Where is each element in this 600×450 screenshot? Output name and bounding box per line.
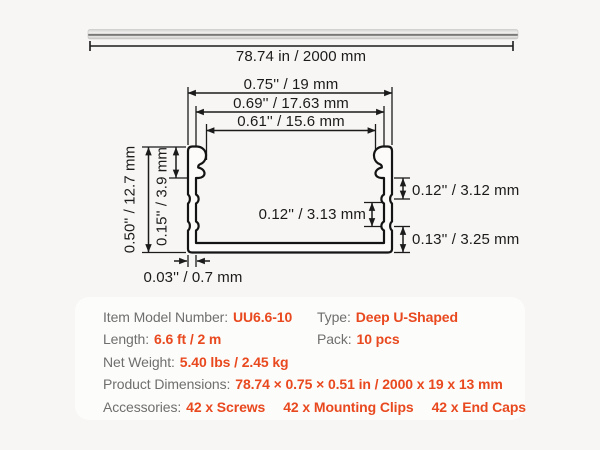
spec-net-weight-label: Net Weight: [103, 354, 175, 370]
dim-seg-bottom-right-label: 0.13'' / 3.25 mm [412, 231, 542, 248]
spec-product-dimensions: Product Dimensions:78.74 × 0.75 × 0.51 i… [103, 373, 525, 395]
spec-model-label: Item Model Number: [103, 309, 228, 325]
spec-model-value: UU6.6-10 [233, 309, 292, 325]
spec-net-weight-value: 5.40 lbs / 2.45 kg [180, 354, 289, 370]
spec-row-length-pack: Length:6.6 ft / 2 m Pack:10 pcs [103, 328, 525, 350]
spec-accessory-screws: 42 x Screws [186, 399, 265, 415]
spec-pack-value: 10 pcs [357, 331, 400, 347]
spec-length-label: Length: [103, 331, 149, 347]
spec-length-value: 6.6 ft / 2 m [154, 331, 221, 347]
spec-type-value: Deep U-Shaped [356, 309, 458, 325]
product-dimension-infographic: 78.74 in / 2000 mm 0.75'' / 19 mm 0.69''… [0, 0, 600, 450]
dim-seg-top-right-label: 0.12'' / 3.12 mm [412, 182, 542, 199]
spec-accessory-end-caps: 42 x End Caps [432, 399, 526, 415]
dim-width-outer-label: 0.75'' / 19 mm [166, 76, 416, 93]
dim-height-outer-label: 0.50'' / 12.7 mm [122, 130, 139, 270]
spec-pack-label: Pack: [317, 331, 352, 347]
spec-pack: Pack:10 pcs [317, 328, 525, 350]
dim-wall-thickness-label: 0.03'' / 0.7 mm [118, 269, 268, 286]
spec-product-dimensions-label: Product Dimensions: [103, 376, 230, 392]
dim-width-mid-label: 0.69'' / 17.63 mm [166, 95, 416, 112]
dim-seg-mid-label: 0.12'' / 3.13 mm [204, 206, 366, 223]
profile-length-bar [88, 30, 518, 40]
spec-accessories-label: Accessories: [103, 399, 181, 415]
spec-accessory-mounting-clips: 42 x Mounting Clips [283, 399, 413, 415]
spec-product-dimensions-value: 78.74 × 0.75 × 0.51 in / 2000 x 19 x 13 … [235, 376, 502, 392]
spec-net-weight: Net Weight:5.40 lbs / 2.45 kg [103, 351, 525, 373]
spec-length: Length:6.6 ft / 2 m [103, 328, 317, 350]
spec-model: Item Model Number:UU6.6-10 [103, 306, 317, 328]
spec-row-model-type: Item Model Number:UU6.6-10 Type:Deep U-S… [103, 306, 525, 328]
length-dimension-label: 78.74 in / 2000 mm [151, 48, 451, 65]
dim-flange-height-label: 0.15'' / 3.9 mm [154, 127, 171, 267]
spec-panel: Item Model Number:UU6.6-10 Type:Deep U-S… [75, 297, 525, 420]
dim-width-inner-label: 0.61'' / 15.6 mm [166, 113, 416, 130]
spec-type-label: Type: [317, 309, 351, 325]
spec-accessories: Accessories:42 x Screws42 x Mounting Cli… [103, 396, 525, 418]
profile-cross-section-path [188, 147, 392, 253]
spec-type: Type:Deep U-Shaped [317, 306, 525, 328]
